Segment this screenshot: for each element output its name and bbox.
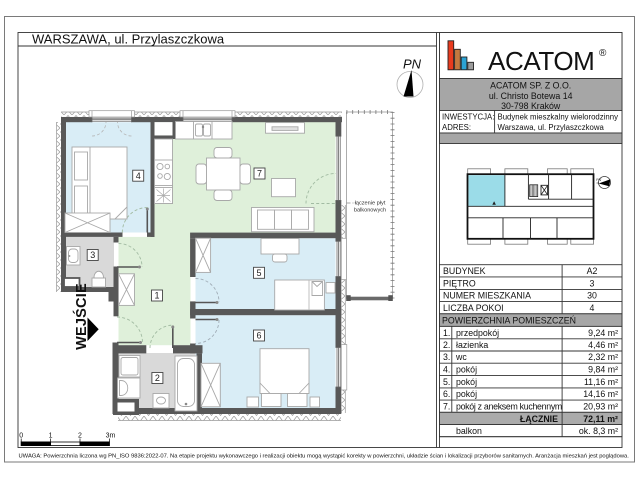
svg-text:7: 7 [257, 169, 262, 179]
svg-text:wc: wc [455, 352, 467, 362]
svg-text:14,16 m²: 14,16 m² [583, 389, 618, 399]
svg-text:5: 5 [256, 268, 261, 278]
svg-text:ACATOM: ACATOM [488, 46, 594, 76]
svg-text:72,11 m²: 72,11 m² [583, 414, 618, 424]
svg-text:0: 0 [19, 433, 23, 440]
svg-text:9,84 m²: 9,84 m² [588, 364, 618, 374]
svg-text:WEJŚCIE: WEJŚCIE [72, 283, 90, 350]
svg-text:5.: 5. [443, 377, 450, 387]
svg-text:UWAGA: Powierzchnia liczona wg: UWAGA: Powierzchnia liczona wg PN_ISO 98… [19, 454, 630, 460]
svg-text:łazienka: łazienka [456, 340, 488, 350]
svg-text:2.: 2. [443, 340, 450, 350]
svg-text:pokój: pokój [456, 389, 477, 399]
svg-text:A2: A2 [587, 266, 598, 276]
svg-text:4,46 m²: 4,46 m² [588, 340, 618, 350]
svg-text:11,16 m²: 11,16 m² [584, 377, 618, 387]
svg-text:1: 1 [49, 433, 53, 440]
svg-text:pokój: pokój [456, 364, 477, 374]
svg-text:NUMER MIESZKANIA: NUMER MIESZKANIA [443, 291, 531, 301]
svg-text:30-798 Kraków: 30-798 Kraków [501, 101, 561, 111]
svg-text:ACATOM SP. Z O.O.: ACATOM SP. Z O.O. [490, 81, 571, 91]
svg-text:7.: 7. [443, 401, 450, 411]
svg-text:®: ® [599, 48, 607, 59]
svg-text:1: 1 [154, 291, 159, 301]
svg-text:4: 4 [136, 171, 141, 181]
svg-text:3: 3 [590, 278, 595, 288]
svg-text:6: 6 [256, 331, 261, 341]
svg-text:PIĘTRO: PIĘTRO [443, 278, 476, 288]
svg-text:ŁĄCZNIE: ŁĄCZNIE [520, 414, 558, 424]
svg-text:pokój z aneksem kuchennym: pokój z aneksem kuchennym [456, 401, 562, 411]
svg-text:4.: 4. [443, 364, 450, 374]
svg-text:PN: PN [596, 178, 602, 182]
svg-text:9,24 m²: 9,24 m² [588, 328, 618, 338]
svg-text:3: 3 [90, 250, 95, 260]
svg-text:6.: 6. [443, 389, 450, 399]
svg-text:Warszawa, ul. Przylaszczkowa: Warszawa, ul. Przylaszczkowa [498, 123, 605, 132]
svg-text:LICZBA POKOI: LICZBA POKOI [443, 303, 504, 313]
svg-text:ADRES:: ADRES: [442, 123, 471, 132]
svg-text:Budynek mieszkalny wielorodzin: Budynek mieszkalny wielorodzinny [498, 113, 619, 122]
svg-text:BUDYNEK: BUDYNEK [443, 266, 486, 276]
svg-text:INWESTYCJA:: INWESTYCJA: [442, 113, 494, 122]
svg-text:3m: 3m [106, 433, 116, 440]
svg-text:4: 4 [590, 303, 595, 313]
svg-text:przedpokój: przedpokój [456, 328, 499, 338]
svg-text:3.: 3. [443, 352, 450, 362]
svg-text:2,32 m²: 2,32 m² [588, 352, 618, 362]
svg-text:30: 30 [587, 291, 597, 301]
svg-text:PN: PN [403, 57, 422, 72]
svg-text:POWIERZCHNIA POMIESZCZEŃ: POWIERZCHNIA POMIESZCZEŃ [442, 315, 576, 325]
svg-text:pokój: pokój [456, 377, 477, 387]
svg-text:ul. Christo Botewa 14: ul. Christo Botewa 14 [489, 91, 573, 101]
svg-text:2: 2 [78, 433, 82, 440]
svg-text:1.: 1. [443, 328, 450, 338]
svg-text:WARSZAWA, ul. Przylaszczkowa: WARSZAWA, ul. Przylaszczkowa [32, 32, 225, 47]
svg-text:ok. 8,3 m²: ok. 8,3 m² [579, 426, 618, 436]
svg-text:2: 2 [155, 373, 160, 383]
svg-text:balkonowych: balkonowych [354, 208, 386, 214]
svg-text:balkon: balkon [456, 426, 482, 436]
svg-text:łączenie płyt: łączenie płyt [355, 201, 386, 207]
svg-text:20,93 m²: 20,93 m² [583, 401, 618, 411]
